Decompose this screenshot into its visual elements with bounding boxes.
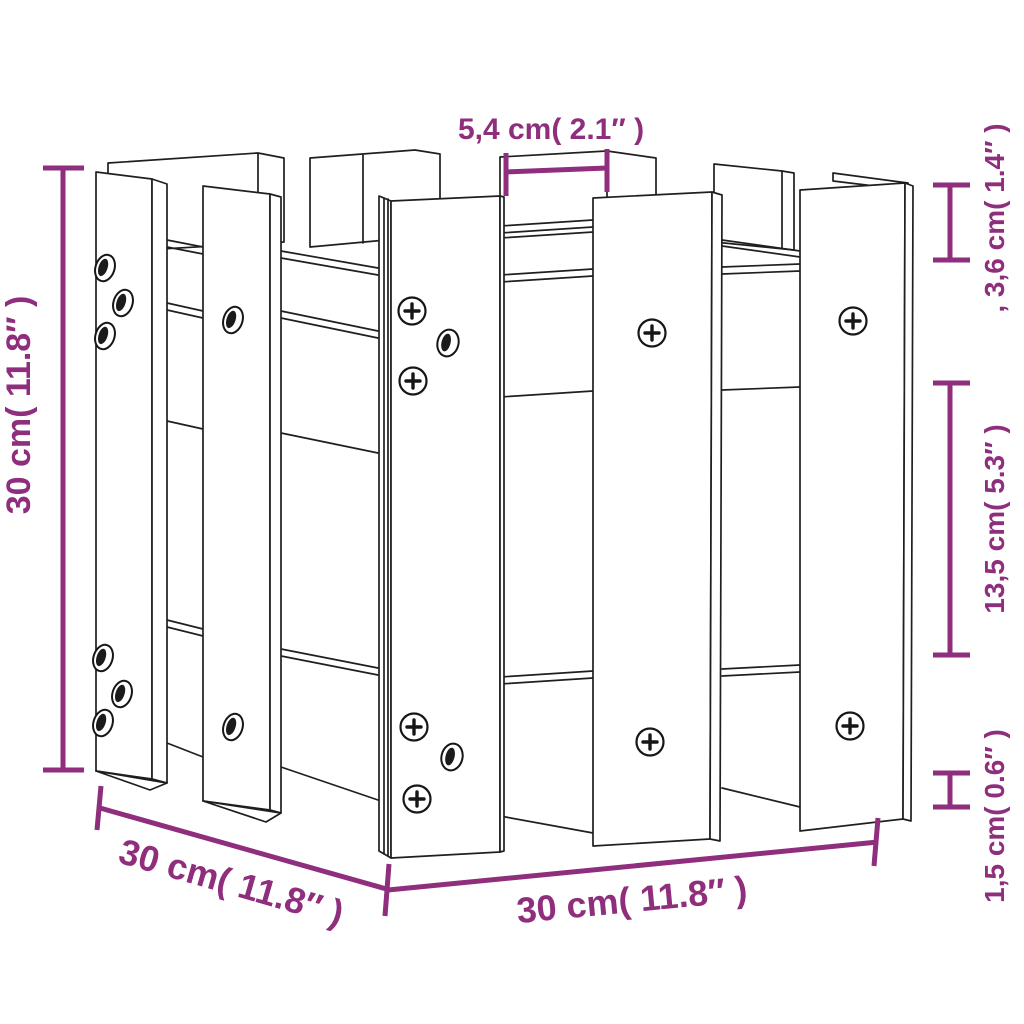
dimension-label-bottom-center: 30 cm( 11.8″ ) xyxy=(515,868,749,931)
front-face-pickets xyxy=(391,183,913,858)
dimension-left: 30 cm( 11.8″ ) xyxy=(0,168,84,770)
left-face-pickets xyxy=(96,172,391,858)
dimension-label-left: 30 cm( 11.8″ ) xyxy=(0,296,38,515)
diagram-canvas: 5,4 cm( 2.1″ ) , 3,6 cm( 1.4″ ) 13,5 cm(… xyxy=(0,0,1024,1024)
planter-line-drawing: 5,4 cm( 2.1″ ) , 3,6 cm( 1.4″ ) 13,5 cm(… xyxy=(0,0,1024,1024)
dimension-label-right-bottom: 1,5 cm( 0.6″ ) xyxy=(979,729,1010,903)
dimension-label-top: 5,4 cm( 2.1″ ) xyxy=(458,113,644,146)
dimension-label-right-top: , 3,6 cm( 1.4″ ) xyxy=(979,123,1010,312)
dimension-right-top: , 3,6 cm( 1.4″ ) xyxy=(933,123,1010,312)
dimension-right-middle: 13,5 cm( 5.3″ ) xyxy=(933,383,1010,655)
dimension-right-bottom: 1,5 cm( 0.6″ ) xyxy=(933,729,1010,903)
dimension-label-right-middle: 13,5 cm( 5.3″ ) xyxy=(979,424,1010,613)
